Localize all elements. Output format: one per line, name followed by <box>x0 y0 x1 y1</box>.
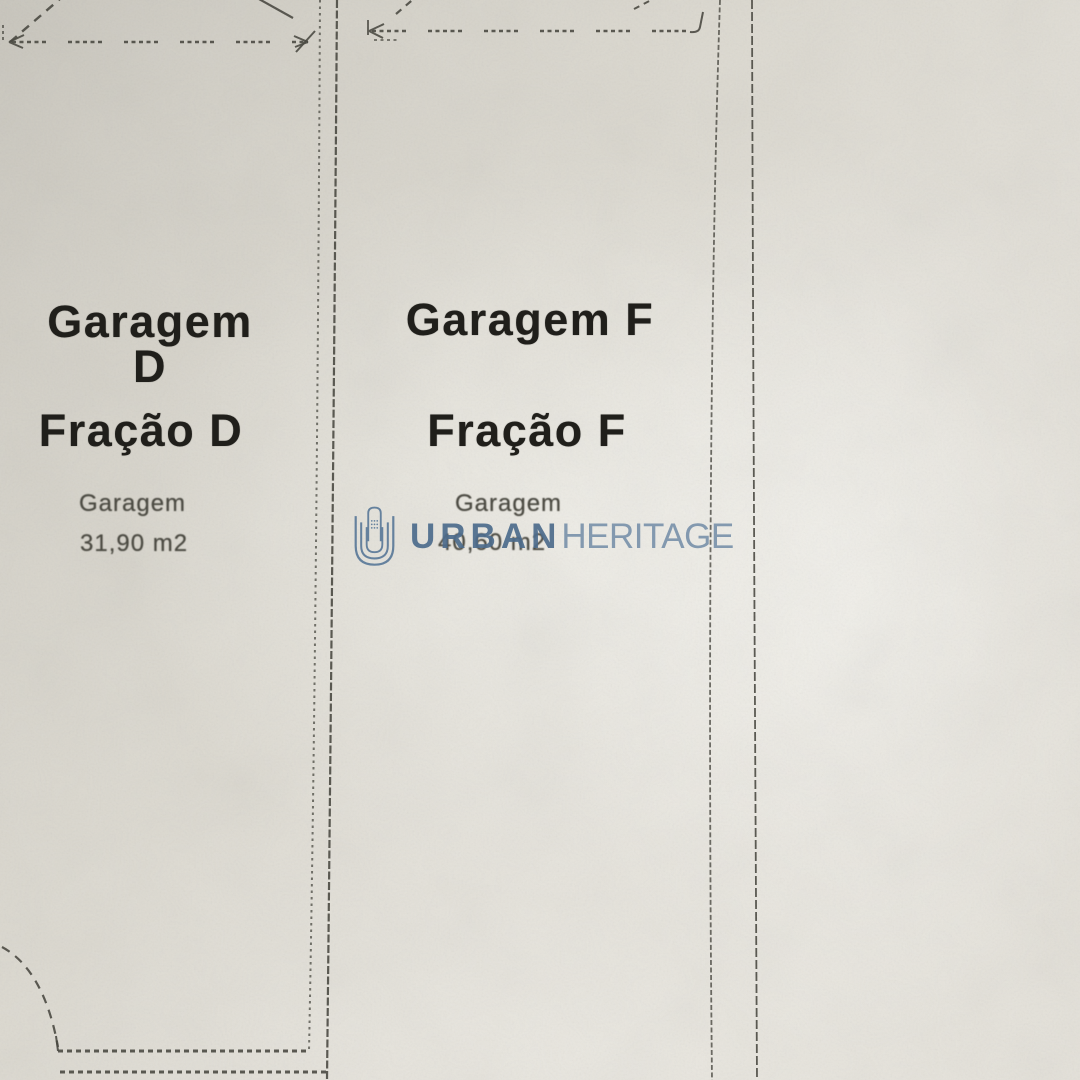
unit-d-room-label: Garagem <box>79 492 186 516</box>
urban-heritage-building-logo-icon <box>351 505 398 568</box>
watermark-urban-text: URBAN <box>410 517 561 556</box>
unit-d-area: 31,90 m2 <box>80 532 188 556</box>
watermark-wordmark: URBANHERITAGE <box>410 519 734 554</box>
unit-f-title: Garagem F <box>402 297 658 342</box>
watermark-heritage-text: HERITAGE <box>561 517 733 556</box>
unit-d-fraction: Fração D <box>28 408 254 453</box>
watermark: URBANHERITAGE <box>351 504 734 568</box>
unit-d-title: Garagem D <box>28 299 272 389</box>
unit-f-fraction: Fração F <box>404 408 650 453</box>
floorplan-photo: Garagem D Fração D Garagem 31,90 m2 Gara… <box>0 0 1080 1080</box>
